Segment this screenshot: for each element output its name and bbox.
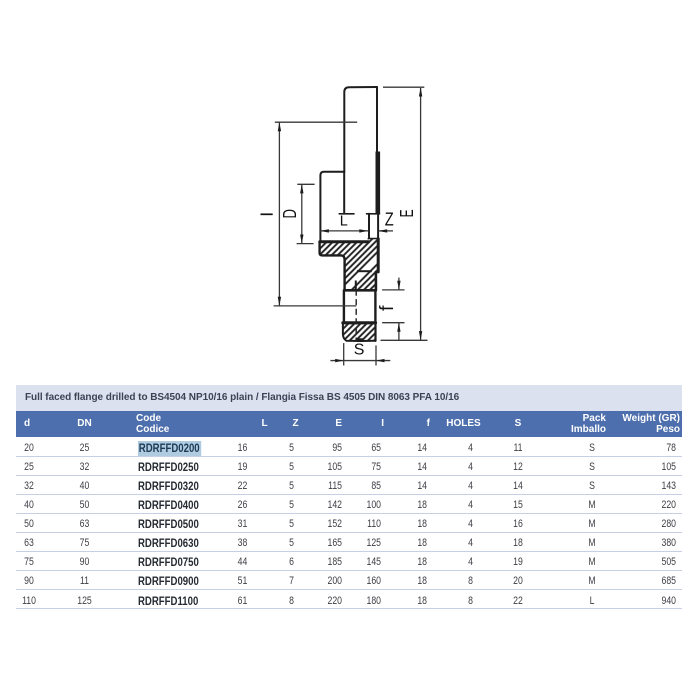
svg-text:E: E xyxy=(396,209,417,217)
svg-text:D: D xyxy=(280,209,300,219)
svg-text:S: S xyxy=(354,342,365,359)
svg-text:L: L xyxy=(340,214,348,230)
svg-text:Z: Z xyxy=(385,208,394,229)
svg-text:f: f xyxy=(376,305,398,311)
